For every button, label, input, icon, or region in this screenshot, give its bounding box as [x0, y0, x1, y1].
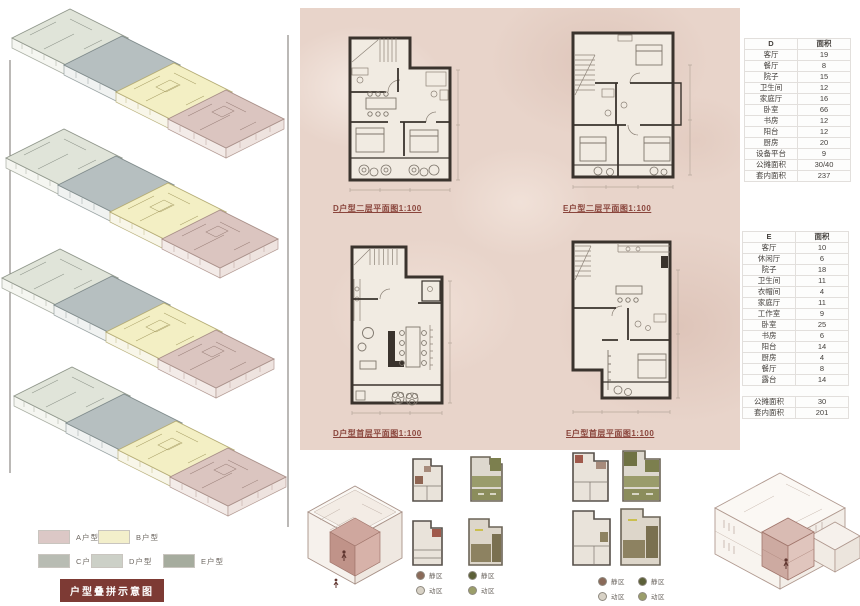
unit-type-legend-item: E户型 [163, 554, 224, 568]
legend-swatch [163, 554, 195, 568]
floor-plans-panel: D户型二层平面图1:100 [300, 8, 740, 450]
e-unit-upper-floor-plan [558, 25, 713, 200]
legend-swatch [38, 530, 70, 544]
analysis-thumb-d-upper-zones [468, 454, 508, 504]
table-cell [743, 386, 796, 397]
table-row: 露台14 [743, 375, 849, 386]
legend-label: E户型 [201, 556, 224, 567]
table-row [743, 386, 849, 397]
table-row: 卧室66 [745, 105, 851, 116]
table-row: 卫生间11 [743, 276, 849, 287]
house-axon-diagram [700, 436, 860, 604]
table-cell: 8 [796, 364, 849, 375]
table-cell: 6 [796, 254, 849, 265]
table-cell: 11 [796, 276, 849, 287]
zone-dot-icon [638, 577, 647, 586]
exploded-axon-stack-diagram [0, 5, 298, 545]
legend-label: A户型 [76, 532, 99, 543]
table-cell: 18 [796, 265, 849, 276]
table-cell: 露台 [743, 375, 796, 386]
unit-type-legend-item: D户型 [91, 554, 152, 568]
zone-dot-icon [416, 586, 425, 595]
table-header-cell: E [743, 232, 796, 243]
table-cell: 15 [798, 72, 851, 83]
table-cell: 套内面积 [743, 408, 796, 419]
table-row: 餐厅8 [743, 364, 849, 375]
table-cell: 院子 [745, 72, 798, 83]
table-cell: 12 [798, 127, 851, 138]
table-cell: 餐厅 [745, 61, 798, 72]
zone-legend-item: 动区 [598, 591, 625, 601]
table-cell: 12 [798, 116, 851, 127]
table-cell: 10 [796, 243, 849, 254]
plan-label-e-upper: E户型二层平面图1:100 [563, 203, 651, 214]
table-cell: 20 [798, 138, 851, 149]
zone-label: 静区 [481, 570, 495, 580]
cube-axon-diagram [300, 470, 412, 602]
zone-legend-item: 静区 [598, 576, 625, 586]
table-row: 套内面积237 [745, 171, 851, 182]
table-row: 公摊面积30 [743, 397, 849, 408]
analysis-thumb-d-ground-zones [466, 516, 508, 568]
table-cell: 30 [796, 397, 849, 408]
table-cell [796, 386, 849, 397]
table-cell: 25 [796, 320, 849, 331]
zone-label: 动区 [429, 585, 443, 595]
zone-legend-group-1: 静区动区 [416, 570, 443, 600]
scheme-title-badge: 户型叠拼示意图 [60, 579, 164, 602]
table-cell: 衣帽间 [743, 287, 796, 298]
table-cell: 卧室 [745, 105, 798, 116]
plan-label-e-ground: E户型首层平面图1:100 [566, 428, 654, 439]
table-row: 餐厅8 [745, 61, 851, 72]
table-cell: 阳台 [745, 127, 798, 138]
table-cell: 厨房 [743, 353, 796, 364]
table-cell: 4 [796, 353, 849, 364]
table-cell: 6 [796, 331, 849, 342]
table-row: 厨房20 [745, 138, 851, 149]
zone-dot-icon [468, 586, 477, 595]
zone-legend-item: 静区 [638, 576, 665, 586]
zone-legend-item: 动区 [468, 585, 495, 595]
zone-dot-icon [468, 571, 477, 580]
table-row: 衣帽间4 [743, 287, 849, 298]
table-cell: 套内面积 [745, 171, 798, 182]
table-row: 院子18 [743, 265, 849, 276]
table-cell: 9 [798, 149, 851, 160]
legend-label: B户型 [136, 532, 159, 543]
table-cell: 4 [796, 287, 849, 298]
table-cell: 公摊面积 [743, 397, 796, 408]
table-cell: 卫生间 [745, 83, 798, 94]
table-cell: 14 [796, 375, 849, 386]
table-header-cell: 面积 [798, 39, 851, 50]
table-row: 家庭厅16 [745, 94, 851, 105]
d-unit-upper-floor-plan [330, 30, 480, 202]
table-cell: 厨房 [745, 138, 798, 149]
analysis-thumb-e-upper-zones [620, 448, 666, 504]
zone-label: 动区 [651, 591, 665, 601]
zone-legend-item: 静区 [416, 570, 443, 580]
table-cell: 客厅 [743, 243, 796, 254]
zone-label: 静区 [429, 570, 443, 580]
zone-dot-icon [598, 592, 607, 601]
analysis-thumb-d-ground [410, 518, 448, 568]
zone-label: 静区 [651, 576, 665, 586]
analysis-thumb-e-ground [570, 508, 616, 568]
zone-legend-item: 动区 [638, 591, 665, 601]
table-cell: 9 [796, 309, 849, 320]
zone-dot-icon [416, 571, 425, 580]
d-unit-ground-floor-plan [330, 235, 485, 427]
zone-label: 动区 [611, 591, 625, 601]
table-cell: 11 [796, 298, 849, 309]
table-cell: 8 [798, 61, 851, 72]
table-header-row: E面积 [743, 232, 849, 243]
unit-type-legend-item: B户型 [98, 530, 159, 544]
table-header-cell: D [745, 39, 798, 50]
table-row: 书房12 [745, 116, 851, 127]
table-cell: 公摊面积 [745, 160, 798, 171]
table-row: 卧室25 [743, 320, 849, 331]
table-row: 公摊面积30/40 [745, 160, 851, 171]
table-cell: 30/40 [798, 160, 851, 171]
table-cell: 院子 [743, 265, 796, 276]
unit-type-legend-item: A户型 [38, 530, 99, 544]
legend-swatch [38, 554, 70, 568]
table-row: 院子15 [745, 72, 851, 83]
zone-legend-group-2: 静区动区 [468, 570, 495, 600]
table-row: 休闲厅6 [743, 254, 849, 265]
table-cell: 19 [798, 50, 851, 61]
table-cell: 休闲厅 [743, 254, 796, 265]
presentation-board: D户型二层平面图1:100 [0, 0, 860, 606]
table-header-row: D面积 [745, 39, 851, 50]
table-cell: 12 [798, 83, 851, 94]
table-cell: 14 [796, 342, 849, 353]
table-header-cell: 面积 [796, 232, 849, 243]
table-cell: 阳台 [743, 342, 796, 353]
analysis-thumb-e-upper [570, 450, 614, 504]
legend-label: D户型 [129, 556, 152, 567]
table-row: 家庭厅11 [743, 298, 849, 309]
area-table-e: E面积客厅10休闲厅6院子18卫生间11衣帽间4家庭厅11工作室9卧室25书房6… [742, 231, 849, 419]
plan-label-d-ground: D户型首层平面图1:100 [333, 428, 422, 439]
zone-legend-group-3: 静区动区 [598, 576, 625, 606]
table-row: 厨房4 [743, 353, 849, 364]
table-row: 阳台12 [745, 127, 851, 138]
table-row: 客厅19 [745, 50, 851, 61]
table-cell: 卧室 [743, 320, 796, 331]
table-cell: 家庭厅 [745, 94, 798, 105]
table-row: 书房6 [743, 331, 849, 342]
plan-label-d-upper: D户型二层平面图1:100 [333, 203, 422, 214]
unit-type-legend: A户型B户型C户型D户型E户型 [25, 528, 295, 576]
analysis-thumb-d-upper [410, 456, 448, 504]
table-row: 客厅10 [743, 243, 849, 254]
legend-swatch [91, 554, 123, 568]
zone-dot-icon [638, 592, 647, 601]
table-cell: 66 [798, 105, 851, 116]
area-table-d: D面积客厅19餐厅8院子15卫生间12家庭厅16卧室66书房12阳台12厨房20… [744, 38, 851, 182]
table-cell: 16 [798, 94, 851, 105]
table-cell: 书房 [743, 331, 796, 342]
zone-legend-item: 静区 [468, 570, 495, 580]
table-cell: 家庭厅 [743, 298, 796, 309]
table-row: 工作室9 [743, 309, 849, 320]
zone-legend-item: 动区 [416, 585, 443, 595]
zone-label: 动区 [481, 585, 495, 595]
table-cell: 201 [796, 408, 849, 419]
table-cell: 餐厅 [743, 364, 796, 375]
table-cell: 卫生间 [743, 276, 796, 287]
table-row: 卫生间12 [745, 83, 851, 94]
table-cell: 设备平台 [745, 149, 798, 160]
table-cell: 237 [798, 171, 851, 182]
table-row: 设备平台9 [745, 149, 851, 160]
e-unit-ground-floor-plan [558, 230, 713, 425]
table-row: 套内面积201 [743, 408, 849, 419]
table-cell: 书房 [745, 116, 798, 127]
zone-legend-group-4: 静区动区 [638, 576, 665, 606]
table-cell: 客厅 [745, 50, 798, 61]
table-cell: 工作室 [743, 309, 796, 320]
zone-label: 静区 [611, 576, 625, 586]
analysis-thumb-e-ground-zones [618, 506, 666, 568]
zone-dot-icon [598, 577, 607, 586]
legend-swatch [98, 530, 130, 544]
table-row: 阳台14 [743, 342, 849, 353]
